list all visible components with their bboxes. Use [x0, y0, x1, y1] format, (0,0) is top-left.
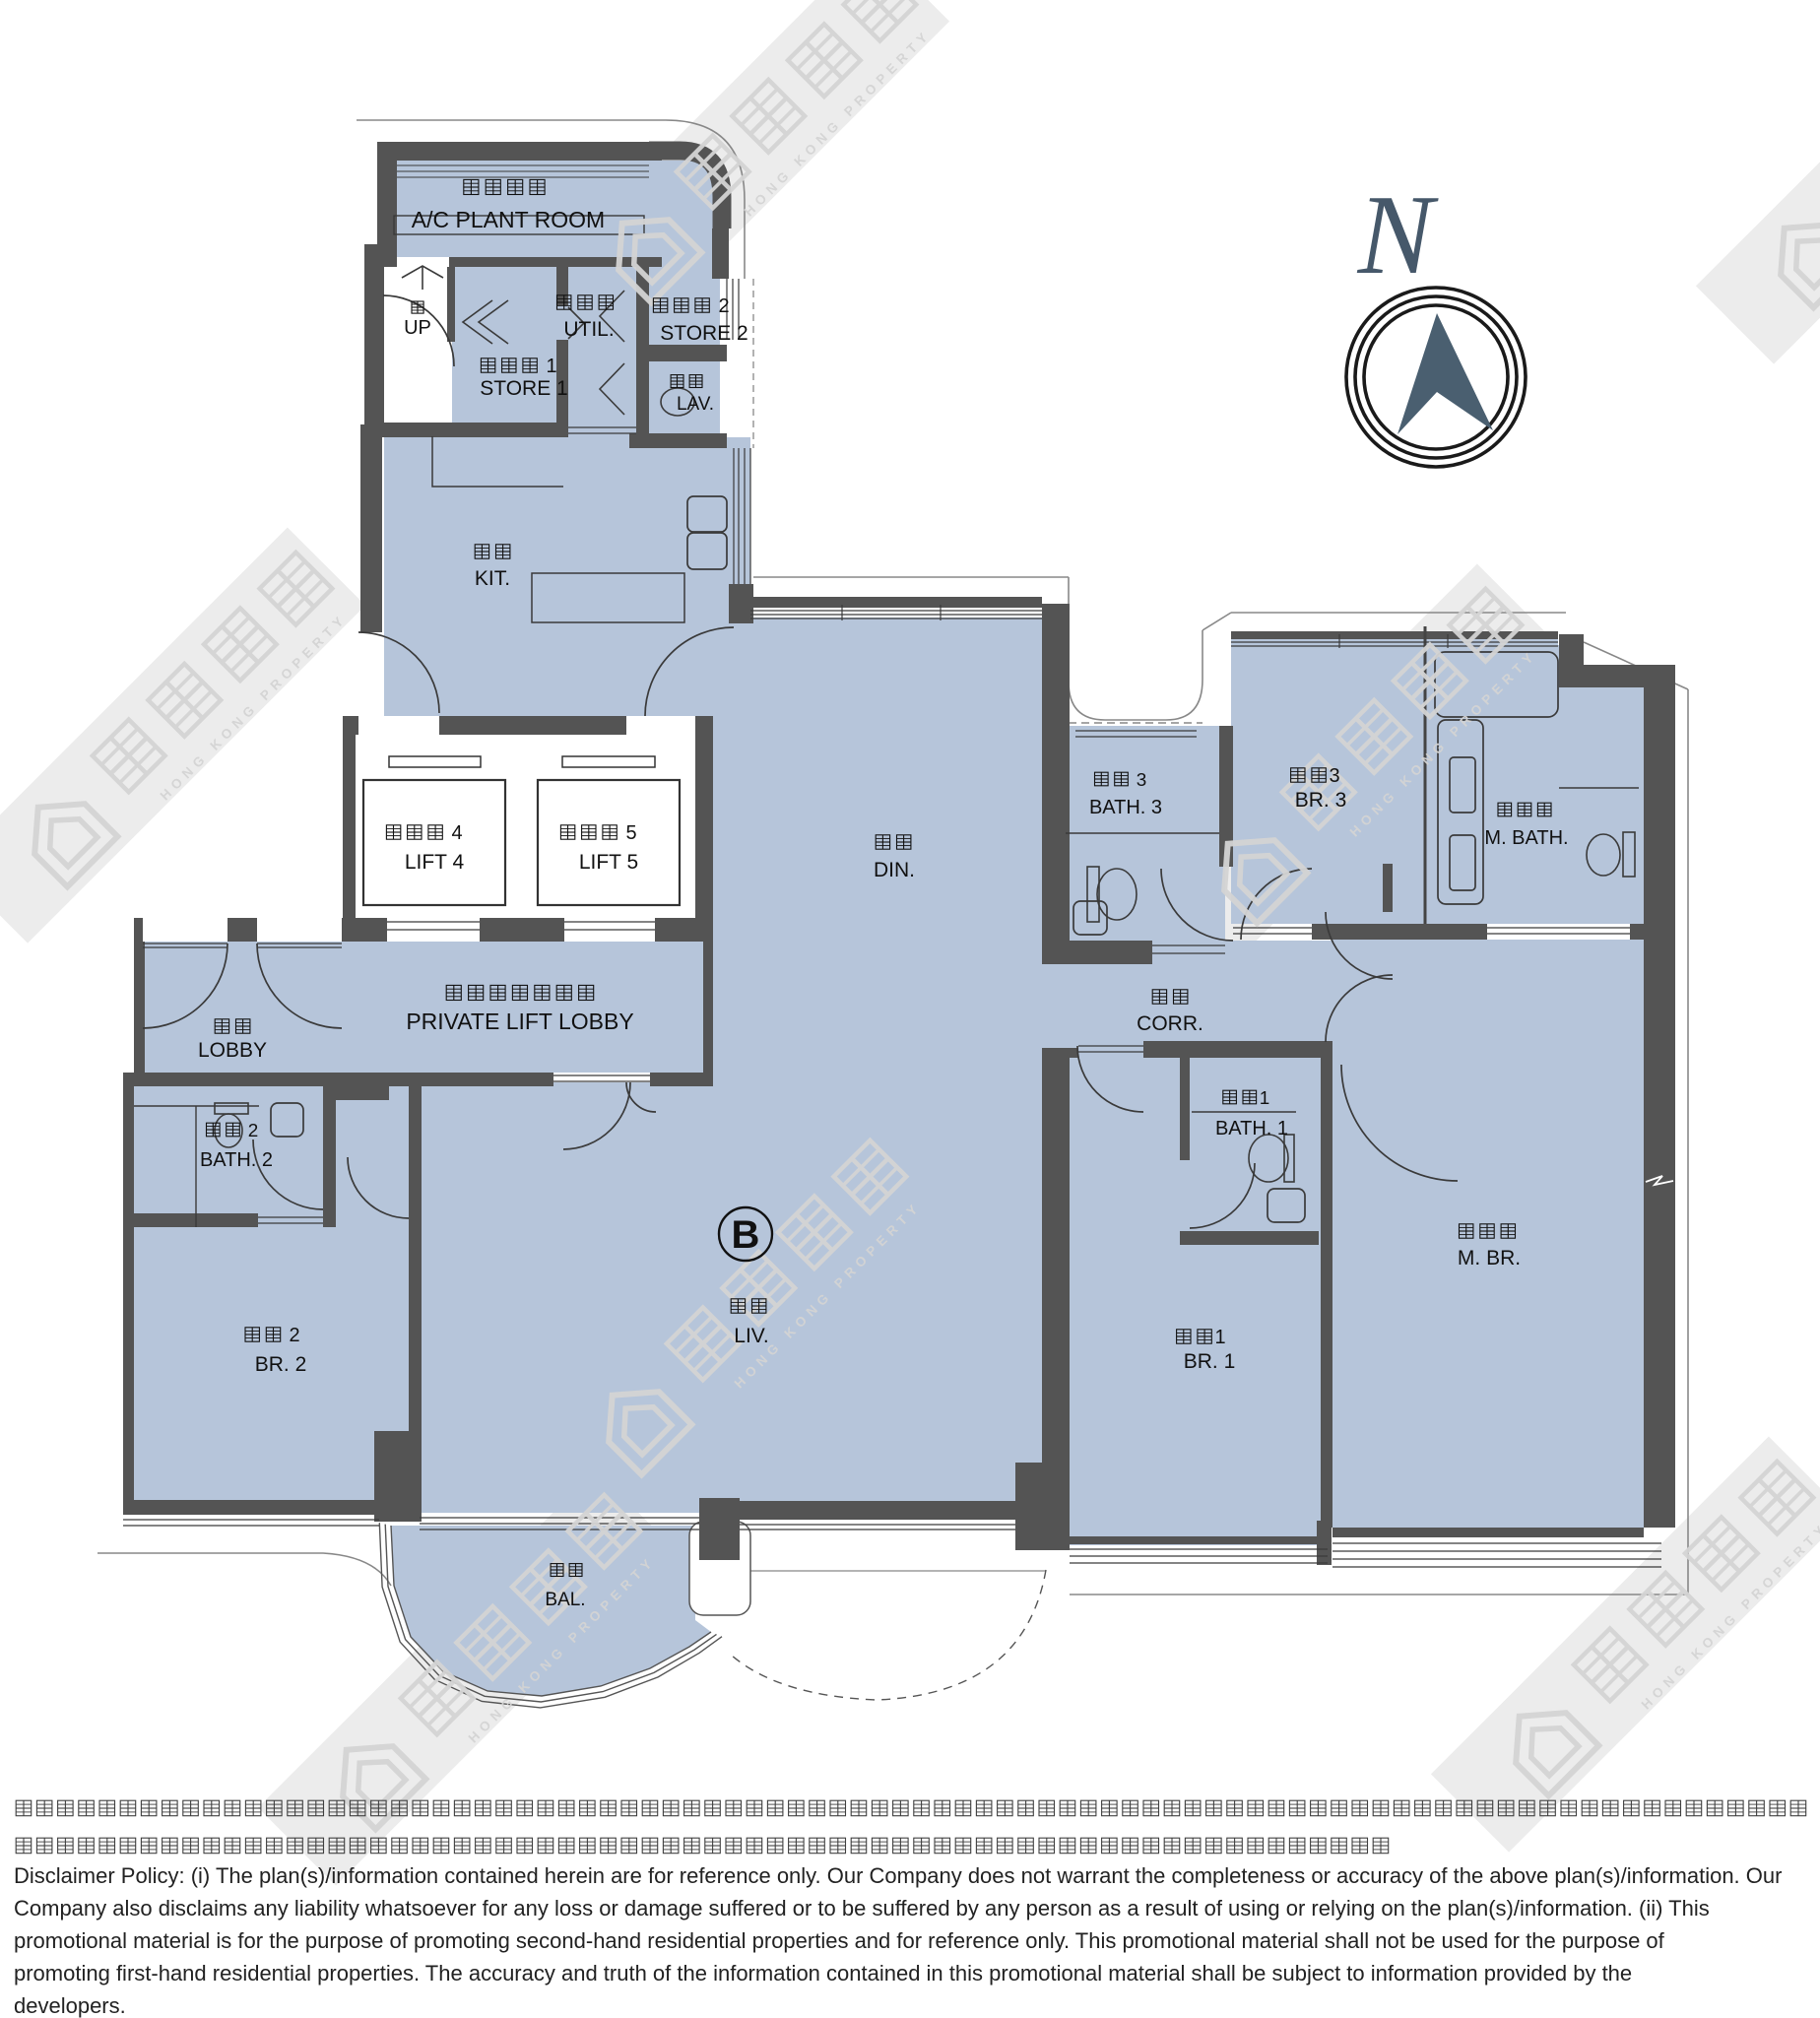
svg-text:BAL.: BAL.	[545, 1590, 585, 1610]
svg-text:promoting first-hand residenti: promoting first-hand residential propert…	[14, 1961, 1632, 1985]
svg-text:BR. 2: BR. 2	[255, 1353, 307, 1376]
svg-text:Disclaimer Policy: (i) The pla: Disclaimer Policy: (i) The plan(s)/infor…	[14, 1863, 1782, 1888]
svg-text:LIV.: LIV.	[734, 1325, 768, 1347]
svg-text:B: B	[732, 1213, 760, 1257]
svg-text:A/C PLANT ROOM: A/C PLANT ROOM	[412, 207, 605, 232]
svg-text:1: 1	[546, 356, 556, 377]
svg-text:N: N	[1357, 172, 1440, 297]
svg-text:3: 3	[1329, 765, 1339, 787]
svg-text:BATH. 3: BATH. 3	[1089, 797, 1162, 818]
svg-text:STORE 2: STORE 2	[660, 322, 747, 345]
svg-text:M. BR.: M. BR.	[1458, 1247, 1521, 1269]
svg-text:BATH. 1: BATH. 1	[1215, 1118, 1288, 1139]
svg-text:UP: UP	[404, 317, 431, 339]
svg-text:LAV.: LAV.	[677, 394, 714, 415]
svg-text:LIFT 5: LIFT 5	[579, 851, 638, 874]
svg-text:2: 2	[289, 1325, 299, 1346]
svg-text:UTIL.: UTIL.	[563, 318, 614, 341]
svg-text:BR. 1: BR. 1	[1184, 1350, 1236, 1373]
svg-text:3: 3	[1137, 770, 1147, 791]
svg-text:M. BATH.: M. BATH.	[1484, 827, 1568, 849]
svg-text:2: 2	[248, 1121, 259, 1141]
svg-text:LOBBY: LOBBY	[198, 1039, 267, 1062]
svg-text:BATH. 2: BATH. 2	[200, 1149, 273, 1171]
svg-text:1: 1	[1214, 1327, 1225, 1348]
svg-text:4: 4	[451, 822, 462, 844]
svg-text:promotional material is for th: promotional material is for the purpose …	[14, 1928, 1665, 1953]
svg-text:1: 1	[1260, 1088, 1270, 1109]
svg-text:CORR.: CORR.	[1137, 1012, 1203, 1035]
svg-text:2: 2	[718, 295, 729, 317]
svg-text:KIT.: KIT.	[475, 567, 510, 590]
svg-text:STORE 1: STORE 1	[480, 377, 567, 400]
svg-text:BR. 3: BR. 3	[1295, 789, 1347, 812]
svg-text:DIN.: DIN.	[874, 859, 915, 881]
svg-text:5: 5	[625, 822, 636, 844]
svg-text:developers.: developers.	[14, 1993, 126, 2018]
svg-text:LIFT 4: LIFT 4	[405, 851, 465, 874]
svg-text:Company also disclaims any lia: Company also disclaims any liability wha…	[14, 1896, 1710, 1920]
svg-text:PRIVATE LIFT LOBBY: PRIVATE LIFT LOBBY	[406, 1009, 633, 1034]
